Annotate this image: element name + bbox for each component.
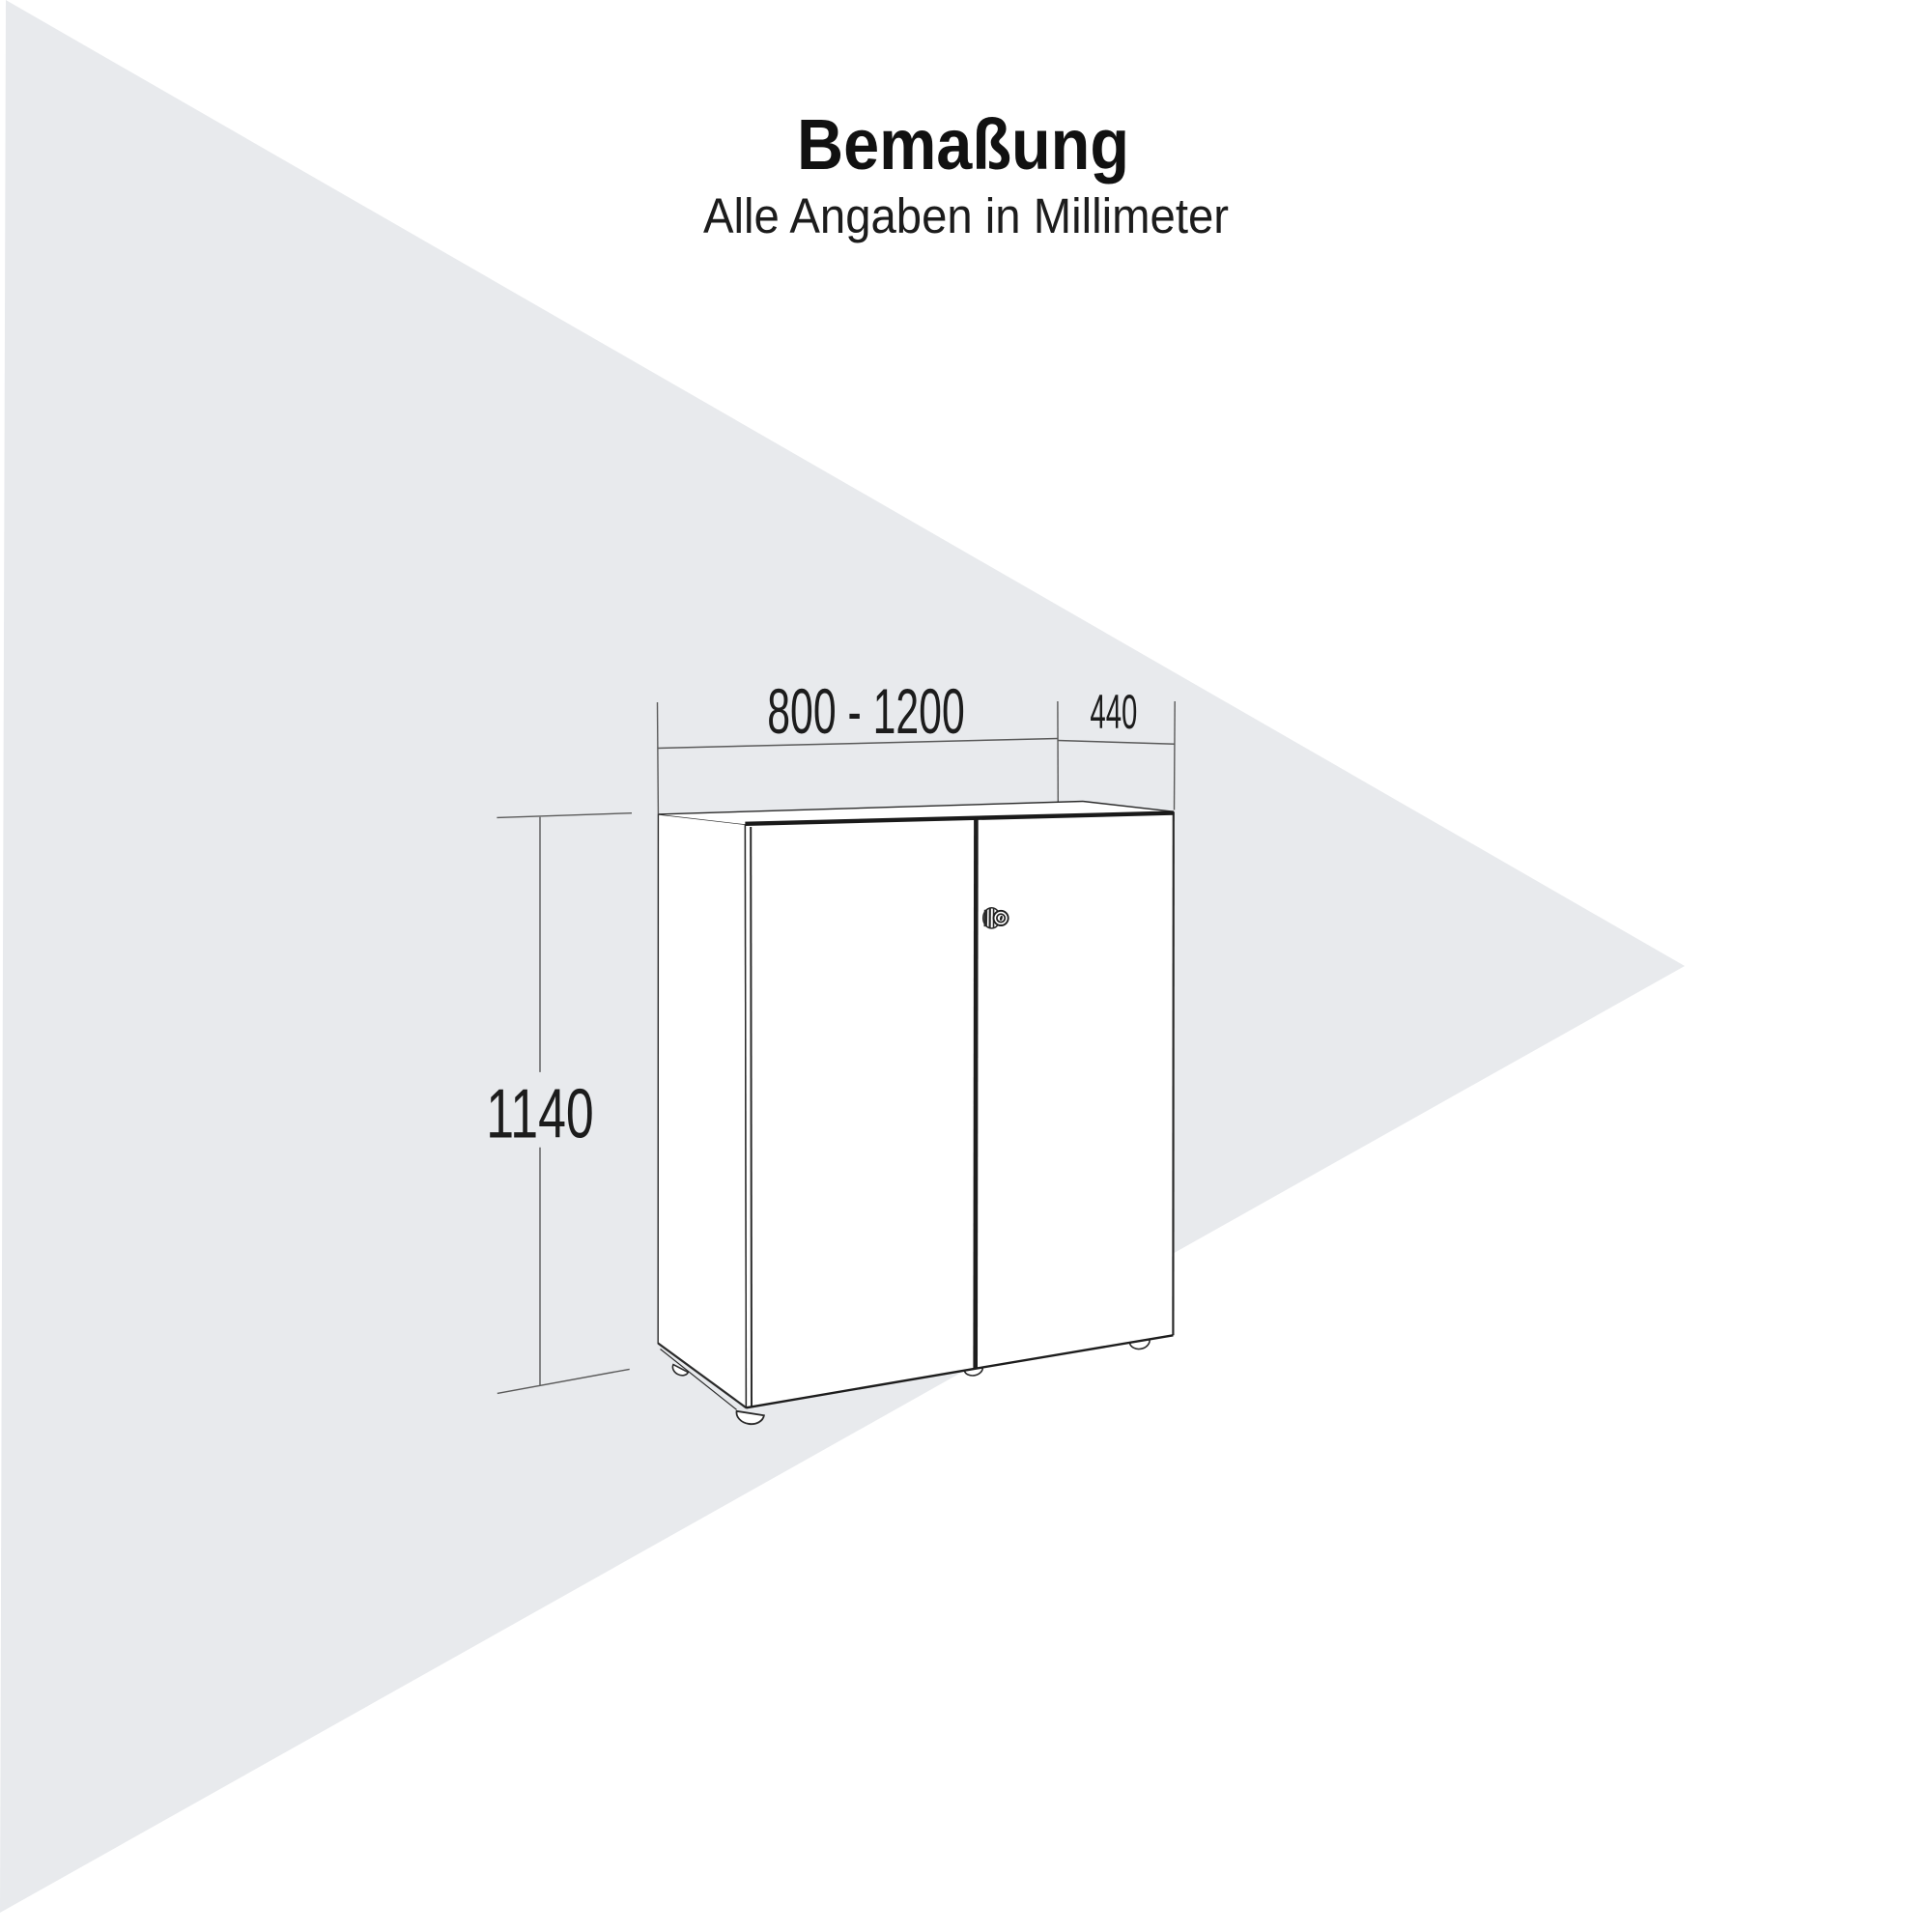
svg-text:Alle Angaben in Millimeter: Alle Angaben in Millimeter: [703, 188, 1229, 243]
svg-text:800 - 1200: 800 - 1200: [767, 675, 965, 747]
svg-text:440: 440: [1090, 685, 1137, 739]
svg-text:Bemaßung: Bemaßung: [797, 104, 1129, 185]
svg-text:1140: 1140: [486, 1076, 593, 1153]
